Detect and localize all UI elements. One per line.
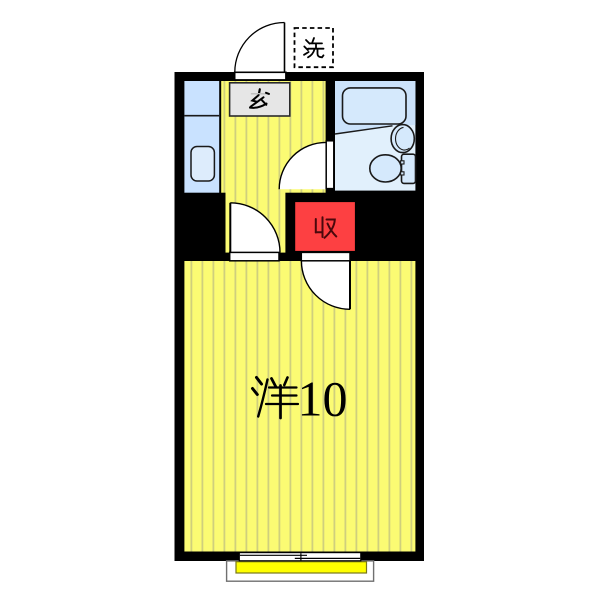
svg-text:10: 10	[298, 371, 348, 427]
